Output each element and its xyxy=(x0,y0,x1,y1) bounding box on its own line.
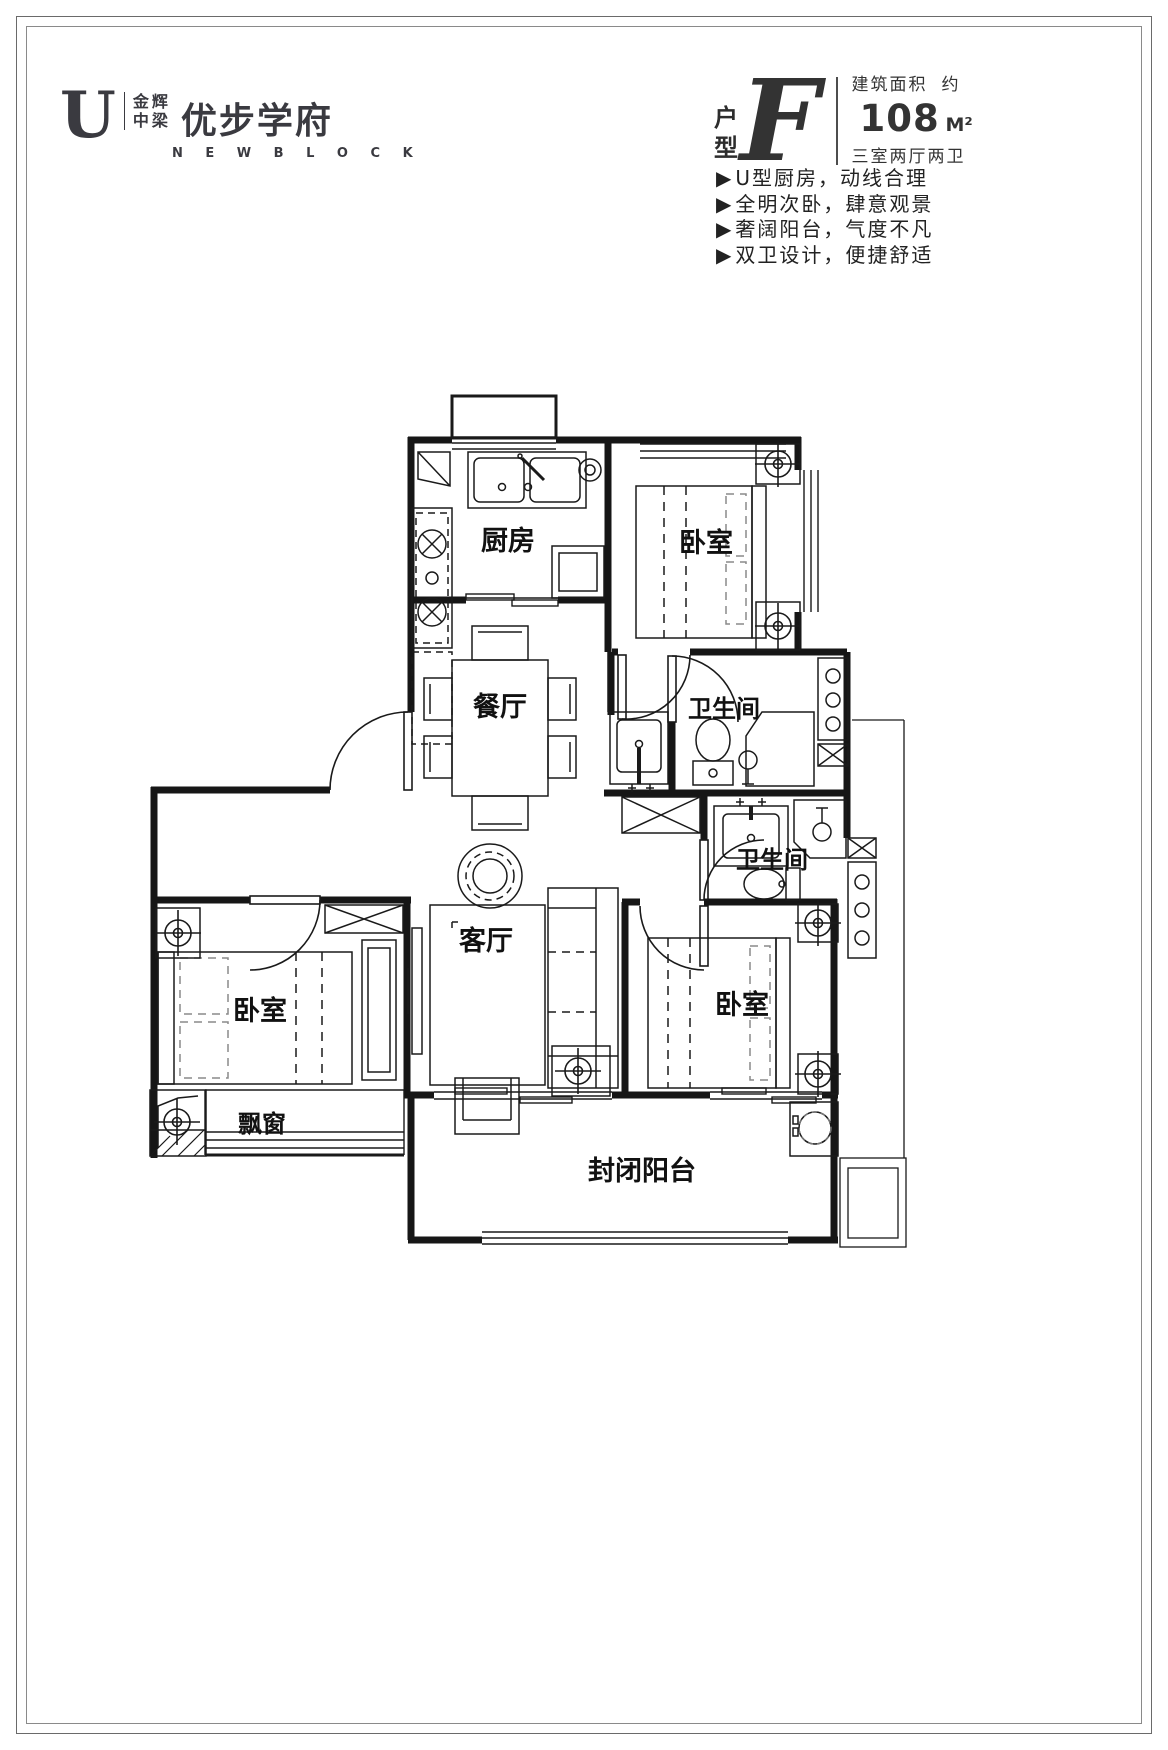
kitchen-corner-shelf xyxy=(418,452,450,486)
room-label-balcony: 封闭阳台 xyxy=(588,1155,696,1187)
room-label-living: 客厅 xyxy=(459,925,513,957)
stove xyxy=(412,508,452,744)
armchair xyxy=(455,1078,519,1134)
shower xyxy=(739,712,814,786)
bedroom-left-door xyxy=(250,896,320,970)
room-label-bay-window: 飘窗 xyxy=(238,1110,286,1138)
room-label-kitchen: 厨房 xyxy=(481,526,535,557)
bath-shelf xyxy=(848,838,876,958)
room-label-bedroom-left: 卧室 xyxy=(233,995,287,1027)
kitchen-window-bump xyxy=(452,396,556,449)
entry-door xyxy=(330,712,412,790)
round-table xyxy=(458,844,522,908)
room-label-bedroom-top: 卧室 xyxy=(679,527,733,559)
dresser xyxy=(362,940,396,1080)
dining-set xyxy=(424,626,576,830)
sofa xyxy=(548,888,618,1088)
floor-plan: 厨房 卧室 卫生间 餐厅 卫生间 客厅 卧室 卧室 飘窗 封闭阳台 xyxy=(0,0,1168,1750)
flue-icon xyxy=(579,459,601,481)
bay-window-block xyxy=(150,1090,206,1156)
shaft-box xyxy=(622,797,700,833)
fridge xyxy=(552,546,604,598)
bedroom-top-door xyxy=(618,655,690,719)
room-label-bath-upper: 卫生间 xyxy=(688,695,760,723)
living-furniture xyxy=(408,844,618,1134)
room-label-bedroom-bottom: 卧室 xyxy=(715,989,769,1021)
vanity-sink xyxy=(608,652,668,792)
windows xyxy=(205,396,822,1244)
dining-table xyxy=(452,660,548,796)
kitchen-sink xyxy=(468,452,586,508)
bedroom-left-furniture xyxy=(156,905,403,1084)
room-label-dining: 餐厅 xyxy=(473,692,527,723)
bed xyxy=(636,486,752,638)
toilet xyxy=(693,719,733,785)
room-label-bath-lower: 卫生间 xyxy=(736,846,808,874)
